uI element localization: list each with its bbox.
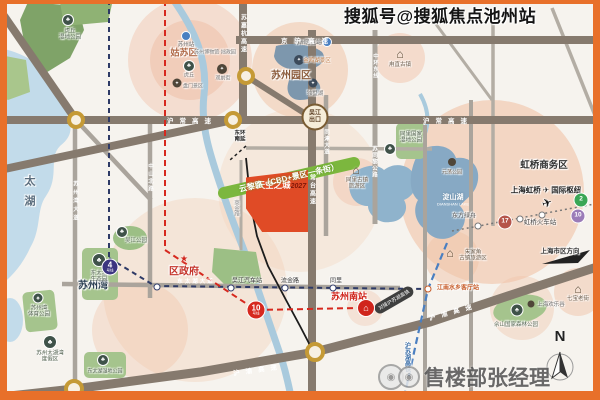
dongfanglvzhou-station-dot <box>475 223 482 230</box>
sheshan-label: 佘山国家森林公园 <box>494 320 538 328</box>
shangjin-road-label: 商金路 <box>232 200 240 217</box>
huchang-expwy-label-west: 沪常高速 <box>167 115 217 125</box>
qibao-label: 七宝老街 <box>567 294 589 302</box>
metro-station-dot <box>154 284 161 291</box>
metro-line4-badge: 4号线 <box>102 259 119 276</box>
sutongli-road-label: 苏同黎公路 <box>370 146 378 179</box>
promo-location-map: ⌂天空之城2027 云黎路（CBD+景区一条街） 京沪高速 沪常高速 沪常高速 … <box>0 0 600 400</box>
sports-park-label: 苏州湾体育公园 <box>28 306 50 319</box>
metro-line10-sh-badge: 10 <box>571 209 586 224</box>
shanghai-direction-label: 上海市区方向 <box>541 245 580 255</box>
huqiu-icon: ♣ <box>183 60 195 72</box>
wujiang-bus-station-dot <box>228 285 235 292</box>
sip-district-label: 苏州园区 <box>271 67 311 82</box>
frame-bottom <box>0 391 600 400</box>
guanqian-label: 观前街 <box>215 75 230 82</box>
huqiu-label: 虎丘 <box>184 72 194 79</box>
museum-label: 苏州博物馆·拙政园 <box>194 49 236 56</box>
jinji-lake-label: 金鸡湖景区 <box>303 56 331 64</box>
jiangnan-station-dot <box>425 286 432 293</box>
zhonghuan-east-label: 中环东线 <box>371 53 379 79</box>
suzhou-south-station-icon: ⌂ <box>357 299 375 317</box>
jiangnan-station-label: 江南水乡客厅站 <box>437 283 479 292</box>
wujiang-bus-station-label: 吴江汽车站 <box>232 276 262 285</box>
tongli-station-label: 同里 <box>330 276 342 285</box>
tongli-town-label: 同里古镇旅游区 <box>346 178 368 191</box>
hongqiao-hub-label: 上海虹桥 ✈ 国际枢纽 <box>511 185 581 196</box>
metro-line10-badge: 10号线 <box>247 301 266 320</box>
watermark-top: 搜狐号@搜狐焦点池州站 <box>344 2 536 27</box>
liujin-station-dot <box>282 285 289 292</box>
hongqiao-cbd-label: 虹桥商务区 <box>520 157 568 171</box>
sujiahang-expwy-label: 苏嘉杭高速 <box>239 14 248 54</box>
resort-icon: ♣ <box>43 335 57 349</box>
luzhi-town-icon: ⌂ <box>396 47 403 61</box>
zhujiajiao-icon: ⌂ <box>446 246 453 260</box>
suzhouwan-ave-label: 苏州湾大道 <box>71 181 79 224</box>
dianshan-lake-en-label: DIANSHAN LAKE <box>437 202 469 207</box>
metro-station-dot <box>517 216 524 223</box>
tongli-wetland-icon: ♣ <box>384 143 396 155</box>
airplane-icon: ✈ <box>543 186 549 195</box>
watermark-bottom: ◉ ◉ 售楼部张经理 <box>378 362 550 392</box>
metro-line17-badge: 17 <box>498 215 513 230</box>
frame-right <box>593 0 600 400</box>
liujin-station-label: 流金路 <box>281 276 299 285</box>
wujiang-park-label: 吴江公园 <box>125 236 147 244</box>
tongli-wetland-label: 同里国家湿地公园 <box>400 132 422 145</box>
tongjin-ave-label: 同津大道 <box>322 129 330 155</box>
dushu-lake-label: 独墅湖 <box>307 89 324 97</box>
huqiu-wetland-label: 虎丘湿地公园 <box>59 29 81 42</box>
wetland-park-label: 东太湖湿地公园 <box>87 368 122 375</box>
zhujiajiao-label: 朱家角古镇旅游区 <box>459 250 487 263</box>
metro-line2-badge: 2 <box>574 193 589 208</box>
frame-left <box>0 0 7 400</box>
sports-park-icon: ♣ <box>33 293 44 304</box>
metro-station-dot <box>539 212 546 219</box>
wechat-avatar-icon: ◉ <box>398 366 420 388</box>
panmen-label: 盘门景区 <box>183 83 203 90</box>
district-gov-label: 区政府 <box>169 263 199 278</box>
gov-star-icon: ★ <box>180 254 188 265</box>
huchang-expwy-label-east: 沪常高速 <box>423 115 473 125</box>
yuandang-label: 元荡公园 <box>442 169 462 176</box>
compass: N <box>555 328 566 345</box>
tongli-town-icon: ⌂ <box>352 163 359 177</box>
suzhou-station-label: 苏州站 <box>178 40 195 48</box>
yuandang-icon <box>448 158 456 166</box>
dongfanglvzhou-label: 东方绿舟 <box>452 211 476 220</box>
huqiu-wetland-icon: ♣ <box>62 14 74 26</box>
wujiang-exit-badge: 吴江出口 <box>302 104 329 131</box>
guanqian-icon: ✦ <box>217 64 227 74</box>
sheshan-icon: ♣ <box>511 304 524 317</box>
east-ring-extension-label: 东环南延 <box>234 131 245 144</box>
dianshan-lake-label: 淀山湖 <box>443 192 464 202</box>
happy-valley-label: 上海欢乐谷 <box>537 300 565 308</box>
tongli-station-dot <box>330 285 337 292</box>
compass-n-label: N <box>555 328 566 345</box>
zhongshan-north-label: 中山北路 <box>146 163 154 193</box>
dongtaihu-ave-label: 东太湖大道 <box>177 277 215 285</box>
jinghu-expwy-label: 京沪高速 <box>281 35 335 45</box>
wetland-park-icon: ♣ <box>97 354 109 366</box>
happy-valley-icon <box>528 301 535 308</box>
luzhi-town-label: 甪直古镇 <box>389 60 411 68</box>
taihu-label: 太湖 <box>21 175 37 215</box>
resort-label: 苏州太湖湾度假区 <box>36 351 64 364</box>
panmen-icon: ✦ <box>173 79 182 88</box>
